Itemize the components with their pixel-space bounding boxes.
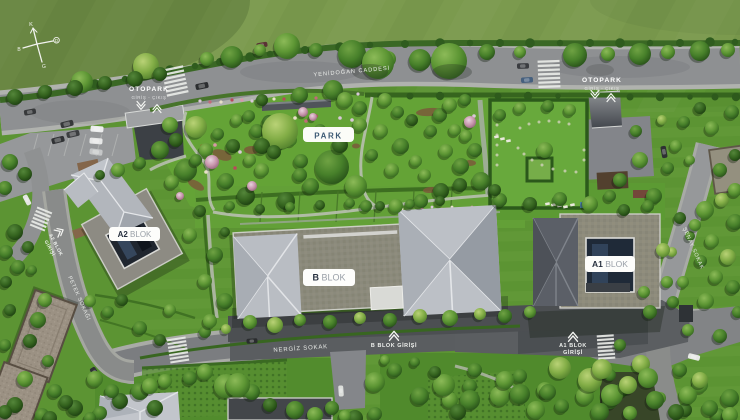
svg-text:B BLOK: B BLOK (312, 273, 345, 283)
svg-text:A1 BLOK: A1 BLOK (592, 259, 628, 269)
svg-text:B BLOK GİRİŞİ: B BLOK GİRİŞİ (371, 342, 417, 349)
svg-text:PARK: PARK (314, 131, 342, 140)
svg-text:GİRİŞ - ÇIKIŞ: GİRİŞ - ÇIKIŞ (131, 95, 166, 100)
svg-text:GİRİŞ - ÇIKIŞ: GİRİŞ - ÇIKIŞ (584, 86, 619, 91)
svg-text:OTOPARK: OTOPARK (582, 77, 622, 84)
svg-text:OTOPARK: OTOPARK (129, 86, 169, 93)
svg-text:GİRİŞİ: GİRİŞİ (563, 349, 583, 356)
svg-text:G: G (42, 64, 46, 70)
svg-text:A1 BLOK: A1 BLOK (559, 343, 587, 349)
svg-text:K: K (29, 22, 33, 28)
svg-text:A2 BLOK: A2 BLOK (118, 230, 152, 239)
